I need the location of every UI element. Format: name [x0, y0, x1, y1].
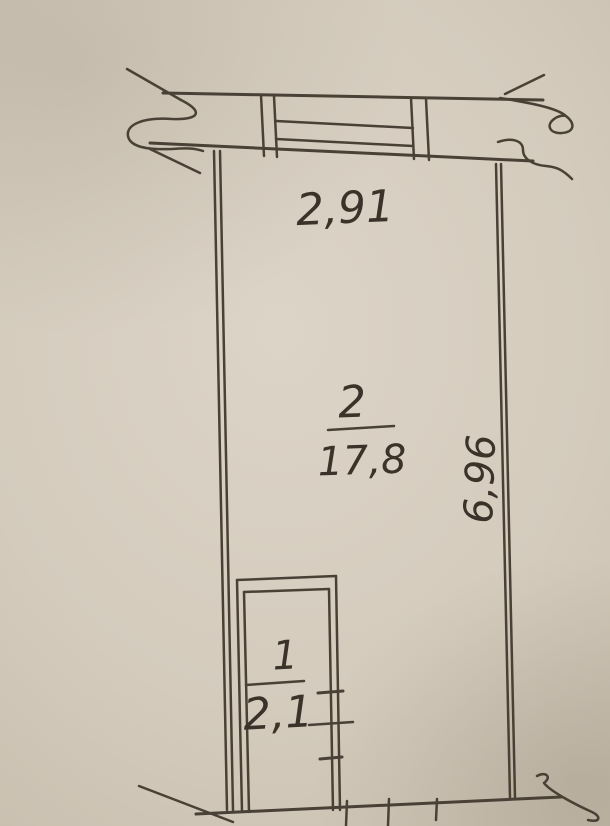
dimension-top-width-label: 2,91 — [295, 181, 395, 236]
dimension-right-height: 6,96 — [456, 434, 505, 525]
dimension-top-width: 2,91 — [295, 181, 395, 236]
floorplan-photo: 2,91 2 17,8 6,96 1 2,1 — [0, 0, 610, 826]
left-wall — [214, 151, 233, 810]
top-wall — [150, 93, 543, 161]
bottom-wall — [196, 797, 561, 826]
room-1-fraction-line — [246, 681, 304, 685]
break-mark-bottom-left-icon — [139, 786, 233, 822]
floorplan-drawing: 2,91 2 17,8 6,96 1 2,1 — [0, 0, 610, 826]
room-1-area-label: 2,1 — [242, 686, 315, 741]
break-mark-top-right-icon — [498, 75, 572, 179]
room-2-area-label: 17,8 — [317, 436, 408, 485]
room-2-number-label: 2 — [337, 377, 367, 429]
room-2-label: 2 17,8 — [317, 377, 408, 486]
break-mark-top-left-icon — [127, 69, 203, 173]
room-1-number-label: 1 — [271, 632, 299, 679]
dimension-right-height-label: 6,96 — [456, 434, 505, 525]
room-1-label: 1 2,1 — [242, 632, 315, 740]
